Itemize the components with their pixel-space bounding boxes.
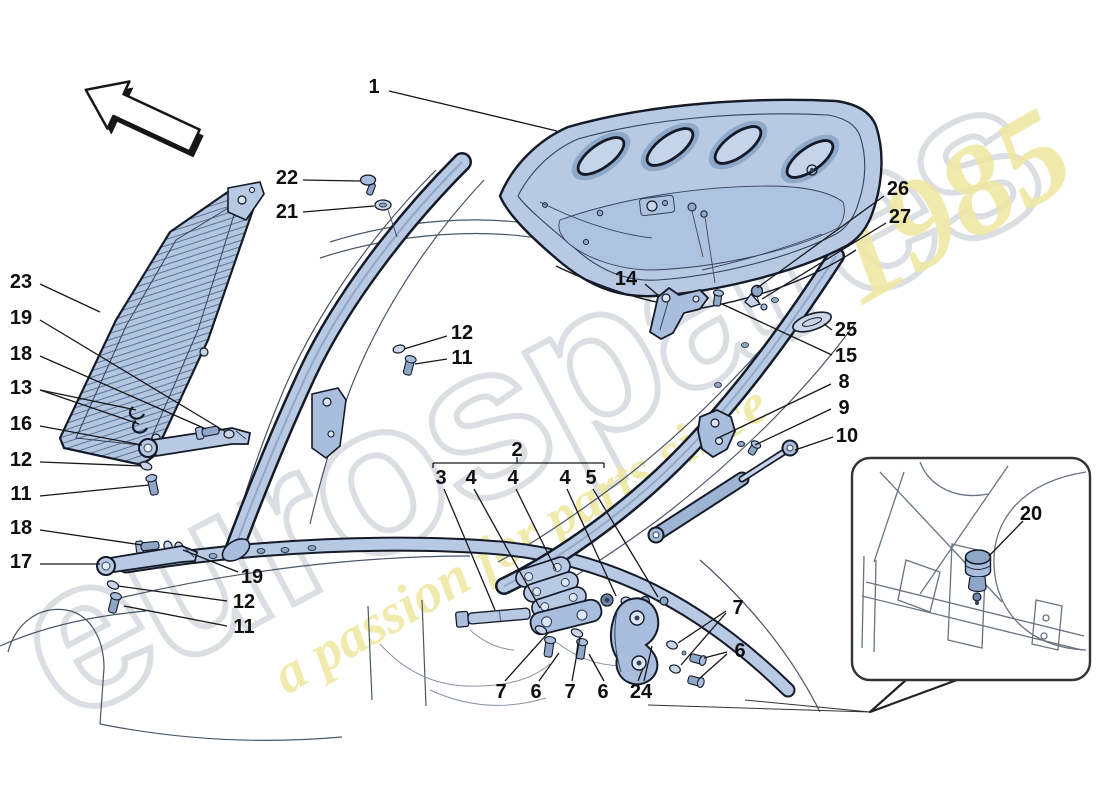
callout-label: 1: [368, 76, 379, 98]
callout-label: 11: [233, 616, 254, 638]
callout-10: 10: [795, 425, 858, 450]
callout-label: 7: [732, 597, 743, 619]
leader-line: [389, 91, 557, 131]
callout-label: 6: [530, 681, 541, 703]
callout-label: 18: [10, 343, 32, 365]
callout-label: 4: [507, 467, 519, 489]
callout-label: 19: [10, 307, 32, 329]
leader-line: [505, 633, 548, 681]
callout-23: 23: [10, 271, 100, 312]
callout-label: 2: [511, 439, 522, 461]
leader-line: [589, 654, 604, 681]
callout-label: 7: [564, 681, 575, 703]
parts-diagram: eurospares a passion for parts since 198…: [0, 0, 1100, 800]
callout-label: 9: [838, 397, 849, 419]
leader-line: [303, 180, 360, 181]
callout-label: 12: [233, 591, 255, 613]
leader-line: [40, 284, 100, 312]
screw-22: [361, 175, 376, 196]
callout-label: 17: [10, 551, 32, 573]
callout-label: 11: [10, 483, 31, 505]
callout-label: 12: [10, 449, 32, 471]
callout-label: 4: [465, 467, 477, 489]
callout-label: 6: [597, 681, 608, 703]
callout-label: 6: [734, 640, 745, 662]
callout-label: 12: [451, 322, 473, 344]
leader-line: [795, 437, 833, 450]
leader-line: [303, 206, 374, 212]
callout-label: 5: [585, 467, 596, 489]
callout-label: 11: [451, 347, 472, 369]
callout-label: 8: [838, 371, 849, 393]
callout-label: 19: [241, 566, 263, 588]
callout-label: 21: [276, 201, 298, 223]
callout-6: 6: [530, 653, 559, 703]
direction-arrow-icon: [75, 66, 210, 170]
callout-7: 7: [564, 637, 580, 703]
callout-label: 25: [835, 319, 857, 341]
callout-label: 3: [435, 467, 446, 489]
diagram-canvas: eurospares a passion for parts since 198…: [0, 0, 1100, 800]
callout-label: 4: [559, 467, 571, 489]
callout-1: 1: [368, 76, 557, 131]
callout-22: 22: [276, 167, 360, 189]
callout-label: 14: [615, 268, 638, 290]
callout-label: 26: [887, 178, 909, 200]
callout-label: 13: [10, 377, 32, 399]
long-bolt-3: [456, 606, 531, 627]
callout-label: 23: [10, 271, 32, 293]
callout-6: 6: [700, 640, 746, 678]
callout-label: 10: [836, 425, 858, 447]
callout-21: 21: [276, 201, 374, 223]
callout-label: 16: [10, 413, 32, 435]
callout-label: 27: [889, 206, 911, 228]
callout-label: 20: [1020, 503, 1042, 525]
callout-label: 7: [495, 681, 506, 703]
callout-label: 15: [835, 345, 857, 367]
callout-label: 24: [630, 681, 653, 703]
callout-label: 18: [10, 517, 32, 539]
callout-label: 22: [276, 167, 298, 189]
